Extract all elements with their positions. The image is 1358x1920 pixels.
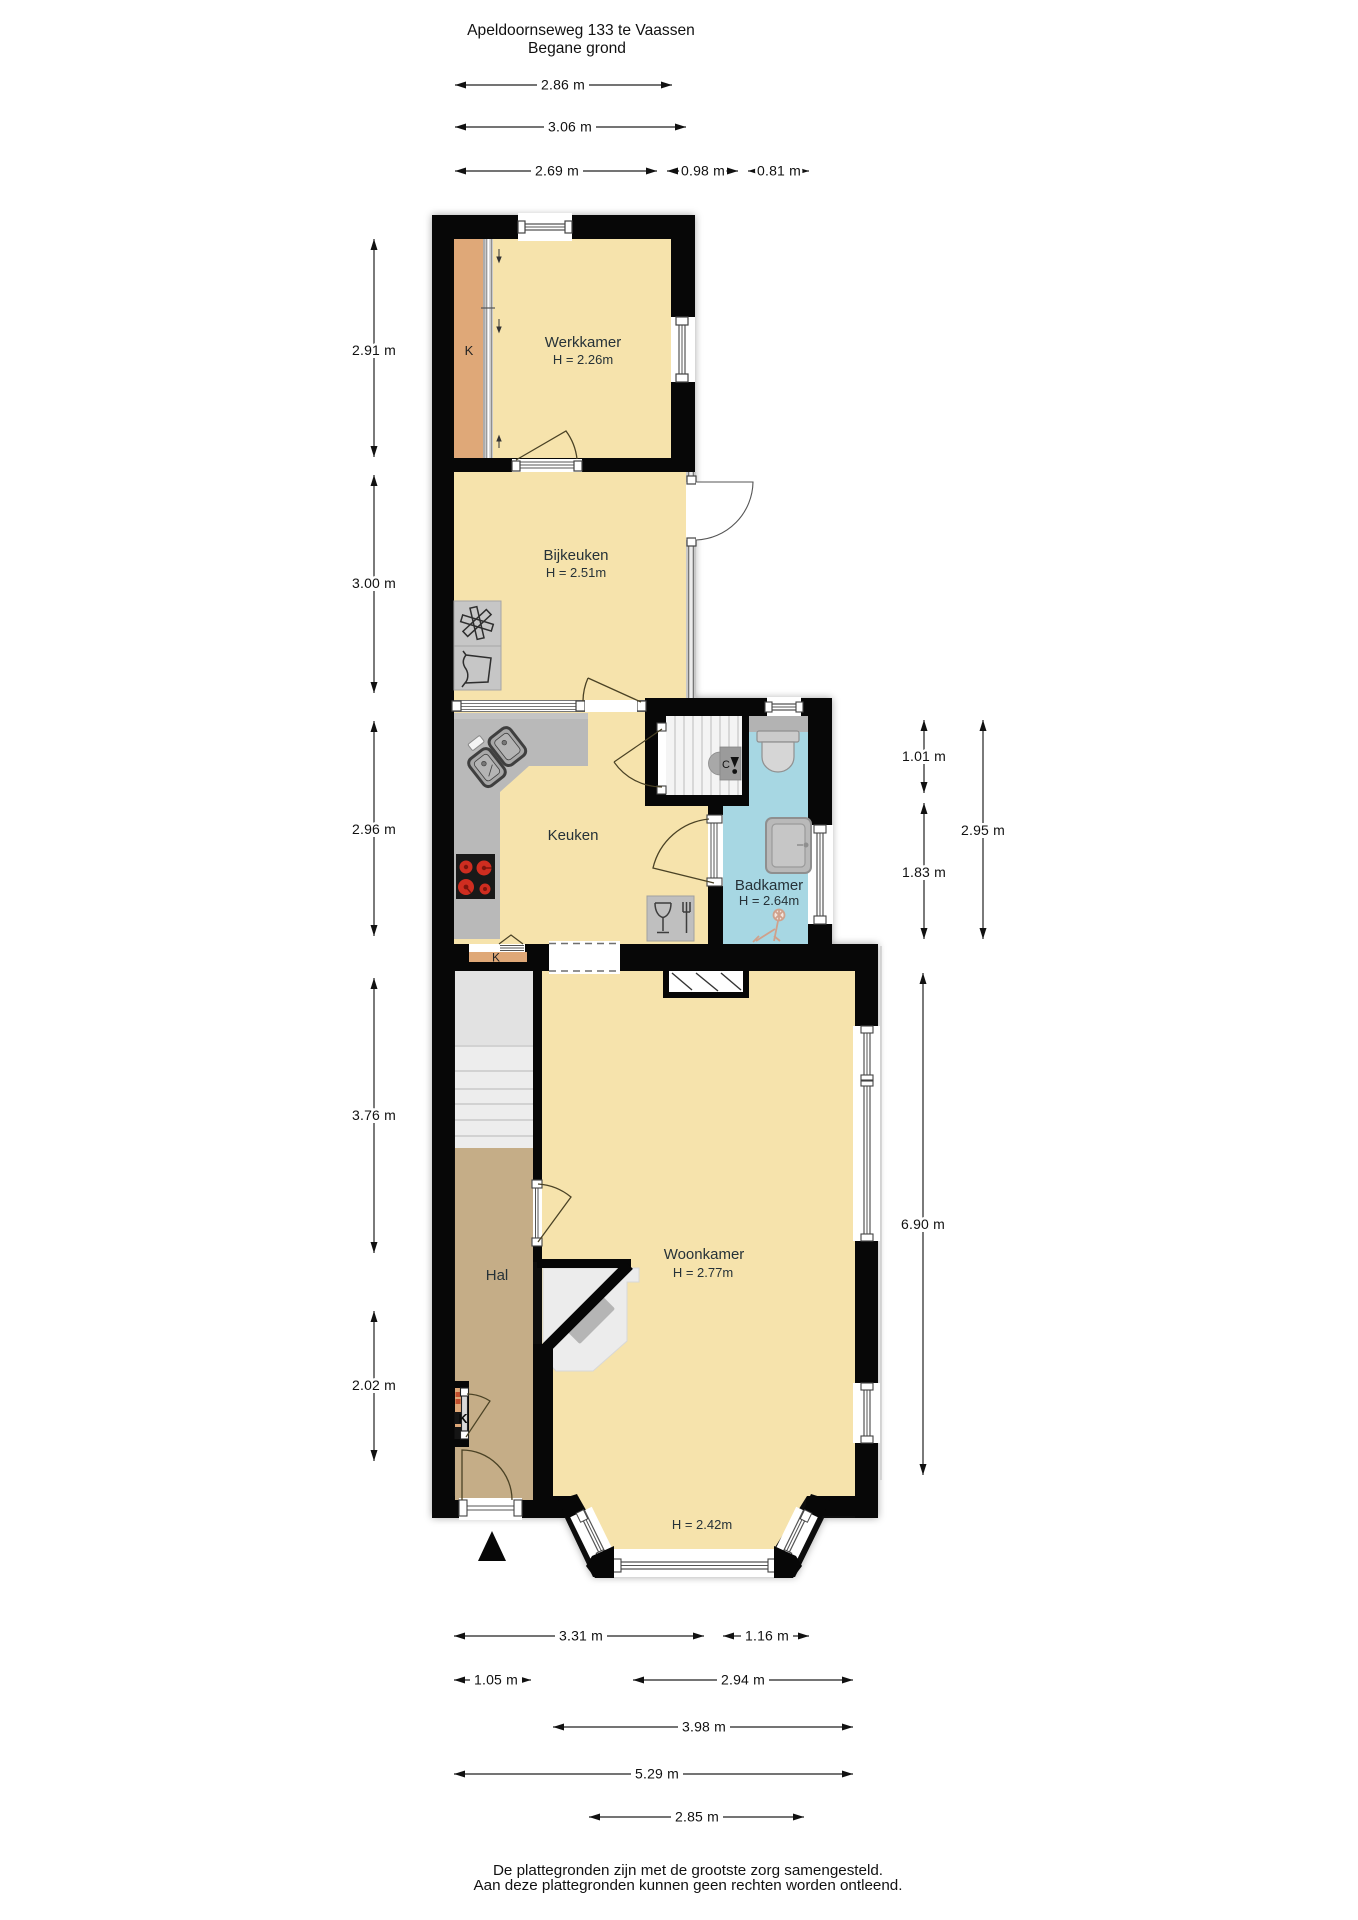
svg-text:K: K [465,343,474,358]
svg-text:2.95 m: 2.95 m [961,822,1005,838]
svg-text:Bijkeuken: Bijkeuken [543,547,608,564]
svg-text:Keuken: Keuken [548,827,599,844]
svg-text:3.00 m: 3.00 m [352,575,396,591]
svg-text:5.29 m: 5.29 m [635,1766,679,1782]
svg-text:2.02 m: 2.02 m [352,1377,396,1393]
svg-text:H = 2.26m: H = 2.26m [553,352,613,367]
svg-text:Woonkamer: Woonkamer [664,1246,745,1263]
svg-text:Begane grond: Begane grond [528,40,626,57]
svg-text:6.90 m: 6.90 m [901,1216,945,1232]
svg-text:H = 2.51m: H = 2.51m [546,565,606,580]
svg-text:1.83 m: 1.83 m [902,864,946,880]
svg-text:1.16 m: 1.16 m [745,1628,789,1644]
svg-text:Werkkamer: Werkkamer [545,334,621,351]
svg-text:0.81 m: 0.81 m [757,163,801,179]
svg-text:1.05 m: 1.05 m [474,1672,518,1688]
svg-text:2.69 m: 2.69 m [535,163,579,179]
svg-text:3.06 m: 3.06 m [548,119,592,135]
svg-text:2.91 m: 2.91 m [352,342,396,358]
svg-text:Hal: Hal [486,1267,509,1284]
svg-text:H = 2.77m: H = 2.77m [673,1265,733,1280]
svg-text:2.86 m: 2.86 m [541,77,585,93]
svg-text:3.31 m: 3.31 m [559,1628,603,1644]
svg-text:Aan deze plattegronden kunnen: Aan deze plattegronden kunnen geen recht… [474,1877,903,1894]
svg-text:2.94 m: 2.94 m [721,1672,765,1688]
svg-text:K: K [492,951,500,965]
svg-text:Badkamer: Badkamer [735,877,803,894]
svg-text:1.01 m: 1.01 m [902,748,946,764]
svg-text:H = 2.42m: H = 2.42m [672,1517,732,1532]
svg-text:K: K [458,1411,468,1426]
svg-text:3.76 m: 3.76 m [352,1107,396,1123]
svg-text:2.96 m: 2.96 m [352,821,396,837]
svg-text:0.98 m: 0.98 m [681,163,725,179]
svg-text:2.85 m: 2.85 m [675,1809,719,1825]
svg-text:3.98 m: 3.98 m [682,1719,726,1735]
svg-text:Apeldoornseweg 133 te Vaassen: Apeldoornseweg 133 te Vaassen [467,22,695,39]
svg-text:H = 2.64m: H = 2.64m [739,893,799,908]
svg-text:C: C [722,759,730,771]
